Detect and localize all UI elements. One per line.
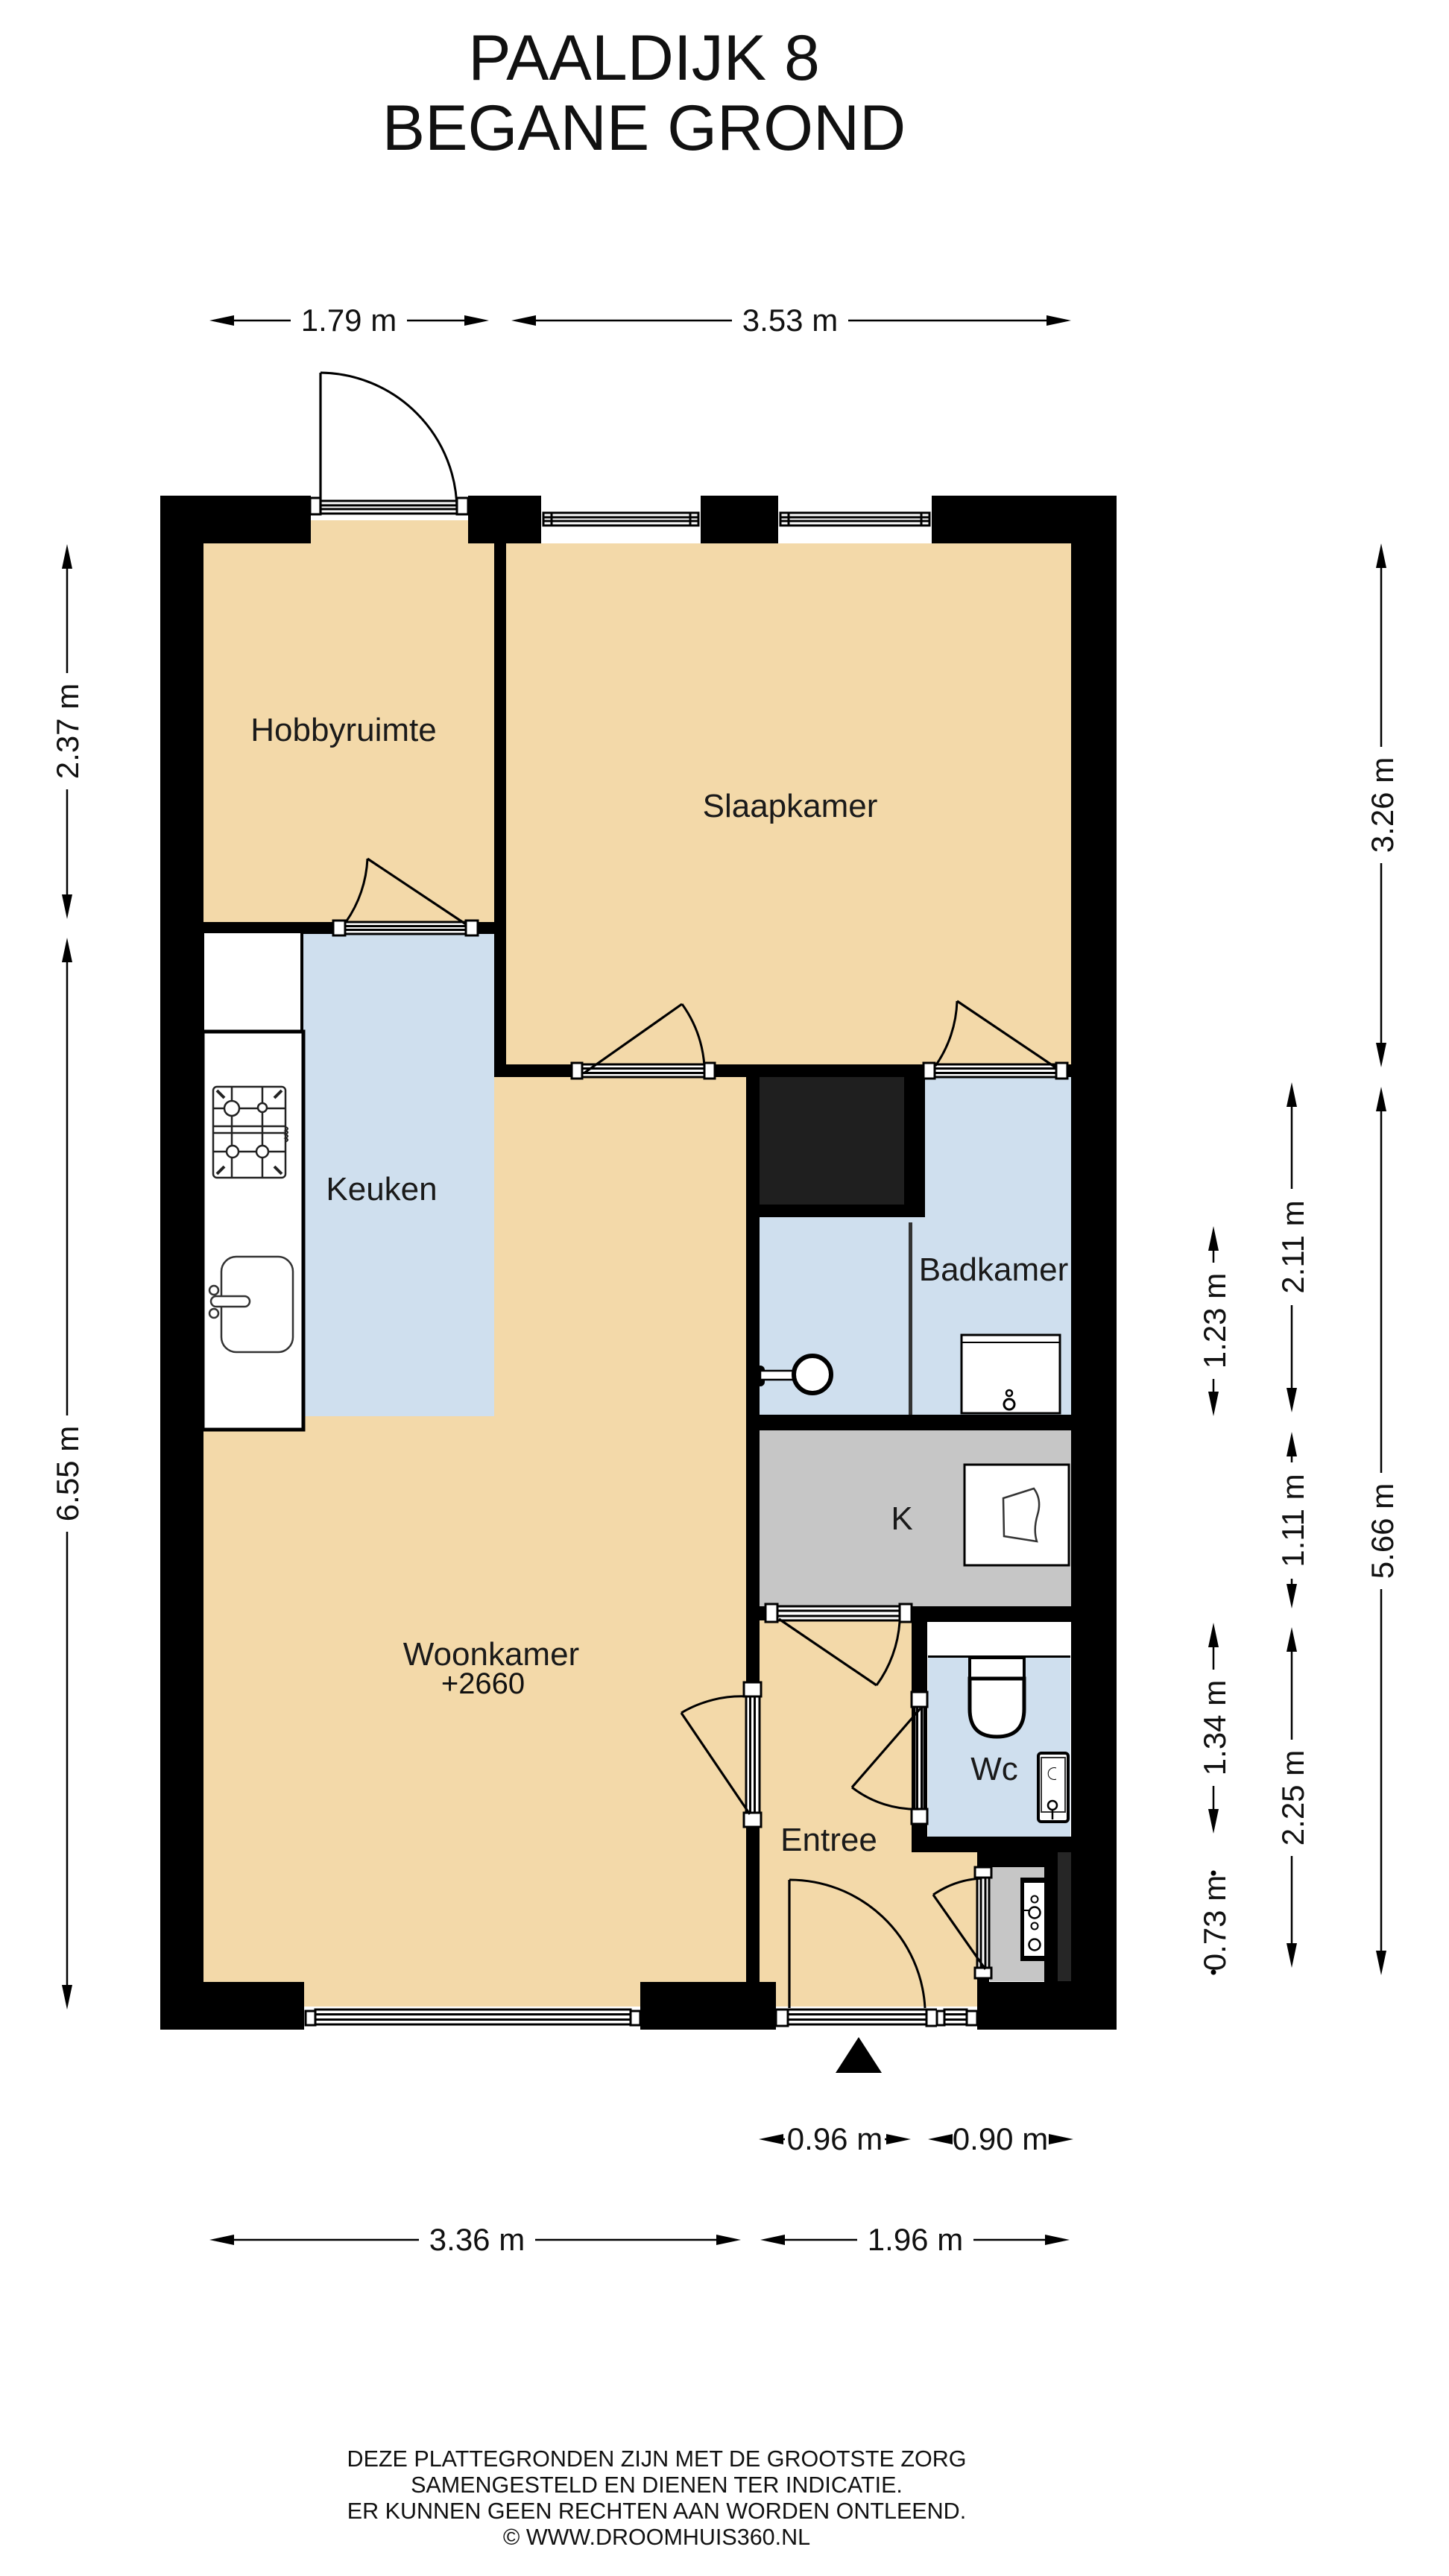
svg-text:K: K <box>891 1500 912 1537</box>
svg-text:© WWW.DROOMHUIS360.NL: © WWW.DROOMHUIS360.NL <box>503 2525 810 2550</box>
svg-text:3.26 m: 3.26 m <box>1365 757 1400 853</box>
svg-text:Keuken: Keuken <box>326 1171 437 1207</box>
svg-text:2.11 m: 2.11 m <box>1275 1200 1310 1293</box>
svg-text:DEZE PLATTEGRONDEN ZIJN MET DE: DEZE PLATTEGRONDEN ZIJN MET DE GROOTSTE … <box>347 2446 967 2472</box>
svg-text:3.36 m: 3.36 m <box>429 2222 525 2257</box>
svg-text:3.53 m: 3.53 m <box>742 303 838 338</box>
svg-text:0.90 m: 0.90 m <box>953 2121 1048 2156</box>
svg-text:2.37 m: 2.37 m <box>50 684 85 779</box>
svg-text:+2660: +2660 <box>441 1667 525 1700</box>
svg-text:1.96 m: 1.96 m <box>868 2222 963 2257</box>
svg-text:Hobbyruimte: Hobbyruimte <box>250 712 436 748</box>
svg-text:6.55 m: 6.55 m <box>50 1426 85 1521</box>
svg-text:0.73 m: 0.73 m <box>1197 1875 1232 1971</box>
svg-text:ER KUNNEN GEEN RECHTEN AAN WOR: ER KUNNEN GEEN RECHTEN AAN WORDEN ONTLEE… <box>347 2498 966 2524</box>
svg-text:Badkamer: Badkamer <box>919 1251 1069 1288</box>
svg-text:1.34 m: 1.34 m <box>1197 1680 1232 1775</box>
svg-text:5.66 m: 5.66 m <box>1365 1483 1400 1579</box>
svg-text:2.25 m: 2.25 m <box>1275 1750 1310 1846</box>
svg-text:1.23 m: 1.23 m <box>1197 1273 1232 1368</box>
svg-text:BEGANE GROND: BEGANE GROND <box>382 92 906 164</box>
svg-text:Slaapkamer: Slaapkamer <box>703 788 878 824</box>
svg-text:1.79 m: 1.79 m <box>301 303 397 338</box>
svg-text:Entree: Entree <box>780 1822 877 1858</box>
svg-text:SAMENGESTELD EN DIENEN TER IND: SAMENGESTELD EN DIENEN TER INDICATIE. <box>411 2472 903 2498</box>
svg-text:0.96 m: 0.96 m <box>787 2121 883 2156</box>
svg-text:PAALDIJK 8: PAALDIJK 8 <box>468 22 820 94</box>
svg-text:1.11 m: 1.11 m <box>1275 1474 1310 1567</box>
svg-text:Wc: Wc <box>970 1751 1018 1787</box>
